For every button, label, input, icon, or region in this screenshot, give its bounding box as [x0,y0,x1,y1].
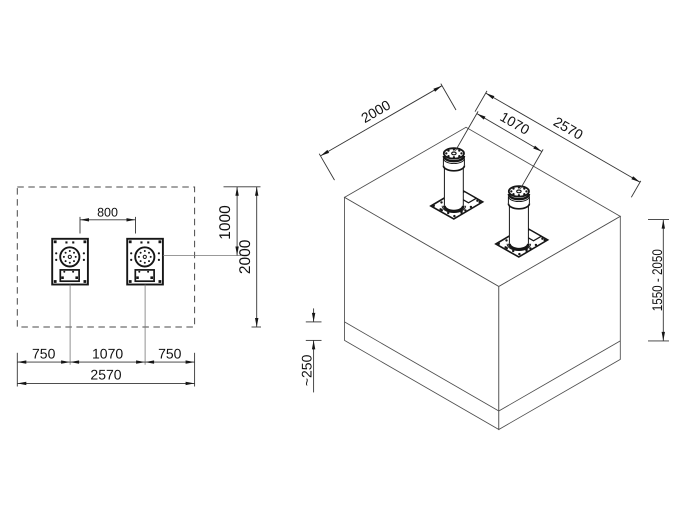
svg-text:2570: 2570 [90,367,121,383]
svg-text:750: 750 [158,345,182,361]
svg-text:1550 - 2050: 1550 - 2050 [649,249,665,311]
svg-text:2000: 2000 [237,239,254,274]
svg-text:800: 800 [97,205,118,219]
svg-text:~250: ~250 [298,354,314,386]
svg-text:750: 750 [32,345,56,361]
svg-text:1070: 1070 [92,345,123,361]
svg-text:1000: 1000 [217,205,234,240]
